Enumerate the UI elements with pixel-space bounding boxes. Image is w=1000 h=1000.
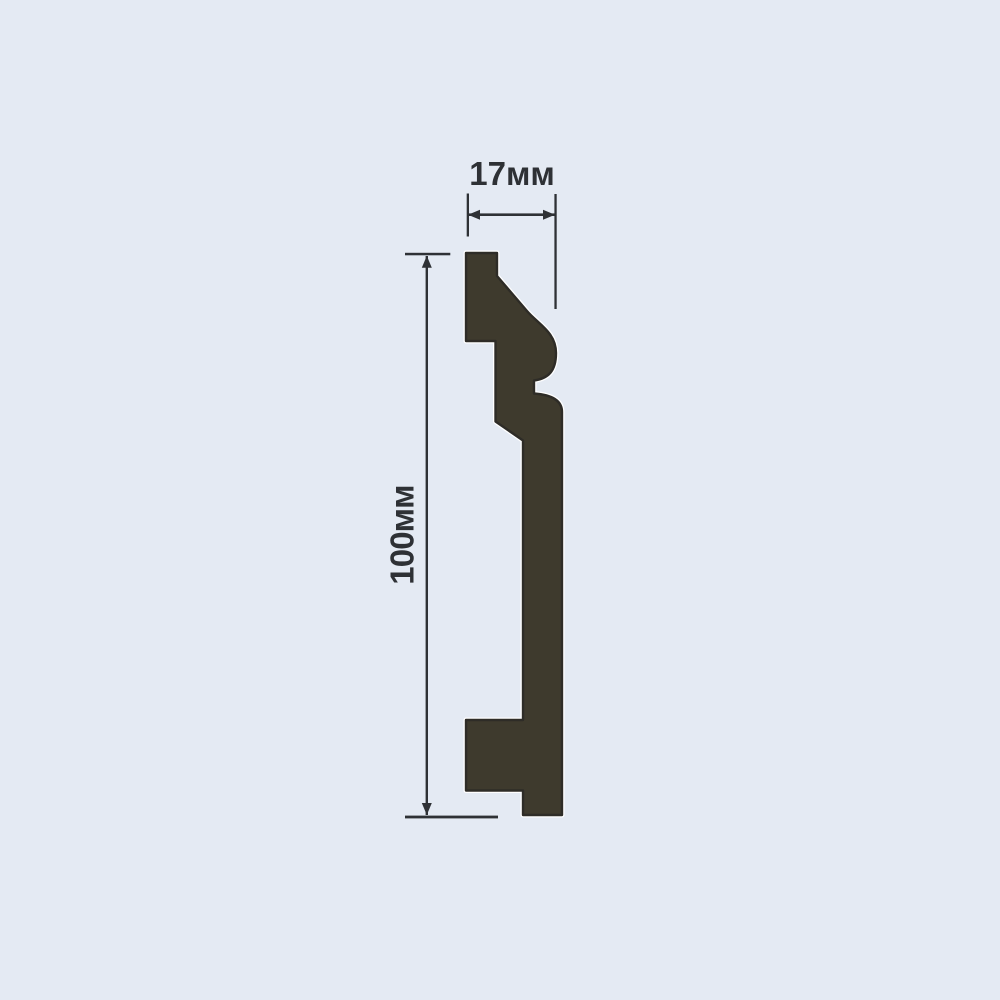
svg-text:100мм: 100мм bbox=[384, 485, 421, 584]
svg-text:17мм: 17мм bbox=[469, 155, 555, 192]
